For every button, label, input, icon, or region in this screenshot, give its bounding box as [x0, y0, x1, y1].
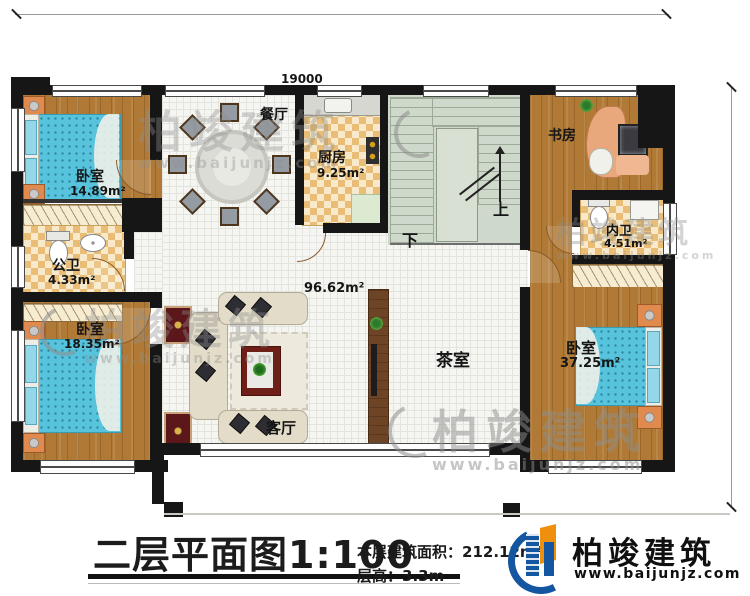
window-study-top	[555, 85, 637, 97]
stair-arrow-head	[495, 146, 505, 154]
study-plant	[580, 99, 593, 112]
stair-flight-top	[432, 97, 522, 127]
room-area-bath-ensuite: 4.51m²	[604, 238, 647, 250]
kitchen-stove	[366, 137, 379, 164]
bathroom-sink	[80, 234, 106, 252]
pillow	[647, 368, 660, 403]
watermark-url: www.baijunjz.com	[138, 154, 342, 172]
room-area-bedroom-bl: 18.35m²	[64, 338, 120, 351]
room-label-kitchen: 厨房	[318, 151, 346, 166]
room-area-bath-public: 4.33m²	[48, 274, 95, 287]
tv-screen	[371, 344, 377, 396]
watermark: 柏竣建筑 www.baijunjz.com	[432, 396, 648, 474]
wall-terrace-left	[152, 455, 164, 504]
stair-direction-arrow	[499, 152, 501, 202]
watermark-text: 柏竣建筑	[138, 107, 342, 158]
dimension-line-top	[15, 14, 669, 15]
floor-plan-canvas: 19000 12200	[0, 0, 750, 596]
window-bedroom-bl-bottom	[40, 460, 135, 474]
floor-height-note: 层高：3.3m	[357, 565, 444, 586]
bedroom-r-wardrobe	[572, 264, 665, 288]
room-area-bedroom-tl: 14.89m²	[70, 185, 126, 198]
pillow	[25, 345, 37, 383]
partition-plant	[370, 317, 383, 330]
brand-logo: 柏竣建筑 www.baijunjz.com	[508, 522, 740, 592]
wall-bath-public-right	[124, 225, 134, 259]
room-label-bedroom-tl: 卧室	[76, 170, 104, 185]
wall-kitchen-bottom	[323, 223, 388, 233]
window-bedroom-tl-top	[52, 85, 142, 97]
room-label-bath-public: 公卫	[52, 259, 80, 274]
brand-logo-building-blue2	[544, 542, 554, 576]
room-label-bedroom-bl: 卧室	[76, 323, 104, 338]
wall-right	[663, 85, 675, 472]
room-label-study: 书房	[548, 129, 576, 144]
terrace-edge-line	[164, 513, 730, 515]
floor-height-value: 3.3m	[402, 567, 444, 585]
wall-bedroom-tl-bottom	[23, 199, 122, 203]
pillow	[25, 120, 37, 155]
floor-height-label: 层高：	[357, 567, 402, 585]
study-chair	[589, 148, 613, 175]
kitchen-cabinet	[351, 194, 382, 226]
window-bath-public-left	[11, 246, 25, 288]
watermark-url: www.baijunjz.com	[556, 249, 716, 262]
wall-kitchen-right	[380, 95, 388, 233]
room-label-tea: 茶室	[436, 353, 470, 371]
room-label-bedroom-r: 卧室	[566, 341, 596, 357]
watermark-url: www.baijunjz.com	[84, 351, 276, 367]
room-label-dining: 餐厅	[260, 108, 288, 123]
watermark: 柏竣建筑 www.baijunjz.com	[138, 96, 342, 172]
window-bedroom-bl-left	[11, 330, 25, 422]
brand-logo-building-blue	[526, 534, 539, 576]
watermark: 柏竣建筑 www.baijunjz.com	[84, 296, 276, 367]
study-rug	[616, 155, 649, 175]
room-area-kitchen: 9.25m²	[317, 167, 364, 180]
watermark-url: www.baijunjz.com	[432, 455, 648, 474]
room-label-living: 客厅	[266, 421, 296, 437]
nightstand	[23, 96, 45, 116]
window-stairs-top	[423, 85, 489, 97]
dimension-line-right	[731, 88, 732, 508]
hall-floor-door-nook	[134, 232, 162, 292]
stairs-up-label: 上	[493, 202, 509, 219]
wall-stairwell-right	[520, 95, 530, 250]
nightstand	[637, 304, 662, 327]
room-area-bedroom-r: 37.25m²	[560, 357, 620, 371]
bedroom-tl-wardrobe	[23, 204, 123, 226]
watermark-text: 柏竣建筑	[432, 405, 648, 459]
window-bedroom-tl-left	[11, 108, 25, 172]
pillow	[647, 331, 660, 366]
dining-chair	[220, 207, 239, 226]
brand-url: www.baijunjz.com	[574, 566, 741, 582]
stairs-down-label: 下	[402, 233, 418, 250]
pillow	[25, 387, 37, 425]
dimension-top-label: 19000	[281, 73, 323, 86]
watermark: 柏竣建筑 www.baijunjz.com	[556, 208, 716, 262]
floor-area-label: 本层建筑面积：	[357, 543, 462, 561]
nightstand	[23, 433, 45, 453]
wall-living-south-stub-left	[162, 443, 200, 455]
wall-ensuite-top	[572, 190, 663, 200]
hall-area-label: 96.62m²	[304, 282, 364, 296]
